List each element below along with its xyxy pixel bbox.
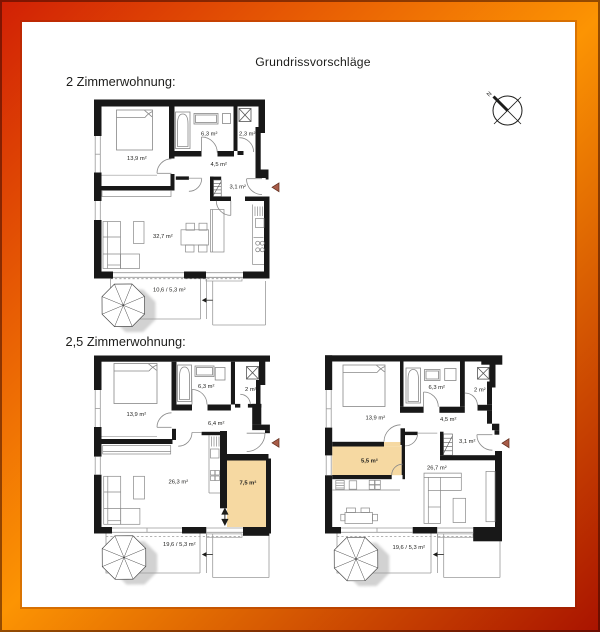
svg-text:26,3 m²: 26,3 m² [169, 480, 189, 486]
svg-text:4,5 m²: 4,5 m² [440, 417, 456, 423]
svg-text:2 m²: 2 m² [474, 388, 486, 394]
svg-text:6,3 m²: 6,3 m² [429, 385, 445, 391]
svg-text:6,3 m²: 6,3 m² [198, 384, 214, 390]
svg-text:6,4 m²: 6,4 m² [208, 421, 224, 427]
svg-text:7,5 m²: 7,5 m² [240, 480, 257, 487]
svg-text:32,7 m²: 32,7 m² [153, 234, 173, 240]
svg-text:10,6 / 5,3 m²: 10,6 / 5,3 m² [153, 288, 186, 294]
svg-text:19,6 / 5,3 m²: 19,6 / 5,3 m² [393, 545, 426, 551]
svg-text:26,7 m²: 26,7 m² [427, 466, 447, 472]
svg-text:2,3 m²: 2,3 m² [239, 132, 255, 138]
svg-text:2 m²: 2 m² [245, 387, 257, 393]
svg-text:N: N [486, 91, 493, 98]
svg-text:3,1 m²: 3,1 m² [459, 439, 475, 445]
svg-text:5,5 m²: 5,5 m² [361, 458, 378, 465]
svg-text:13,9 m²: 13,9 m² [366, 416, 386, 422]
svg-text:4,5 m²: 4,5 m² [211, 162, 227, 168]
svg-text:19,6 / 5,3 m²: 19,6 / 5,3 m² [163, 542, 196, 548]
svg-text:13,9 m²: 13,9 m² [127, 156, 147, 162]
svg-text:3,1 m²: 3,1 m² [230, 185, 246, 191]
svg-text:13,9 m²: 13,9 m² [127, 412, 147, 418]
svg-text:6,3 m²: 6,3 m² [201, 132, 217, 138]
